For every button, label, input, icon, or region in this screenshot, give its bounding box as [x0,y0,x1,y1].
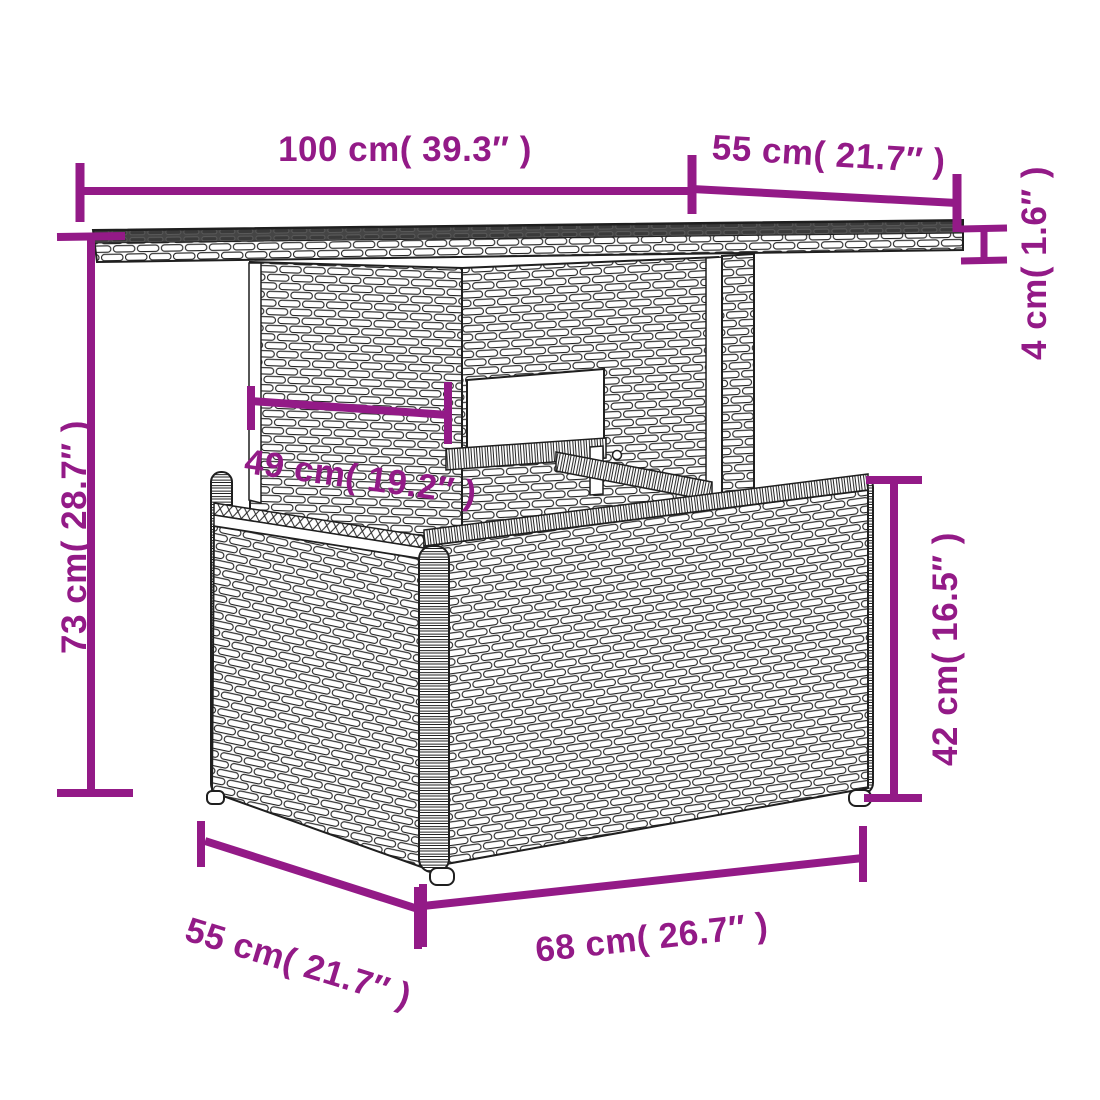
dimension-label-base-height: 42 cm( 16.5″ ) [926,532,965,766]
dimension-label-top-width: 100 cm( 39.3″ ) [278,130,532,169]
dimension-top-width: 100 cm( 39.3″ ) [80,130,692,222]
garden-table-drawing [93,220,963,885]
dimension-line [423,858,863,906]
tick-mark [57,236,125,237]
dimension-overall-height: 73 cm( 28.7″ ) [55,236,133,793]
dimension-line [692,189,957,203]
dimension-label-base-width: 68 cm( 26.7″ ) [533,905,770,969]
pedestal-back-leg [722,254,754,500]
dimension-diagram: 100 cm( 39.3″ ) 55 cm( 21.7″ ) 4 cm( 1.6… [0,0,1100,1100]
dimension-base-height: 42 cm( 16.5″ ) [864,480,965,798]
dimension-top-depth: 55 cm( 21.7″ ) [692,128,957,232]
pedestal-back-plank [706,257,722,502]
tick-mark [961,228,1007,229]
table-foot-left [207,791,224,804]
base-box-left-face [212,526,424,868]
dimension-diagram-canvas: 100 cm( 39.3″ ) 55 cm( 21.7″ ) 4 cm( 1.6… [0,0,1100,1100]
dimension-top-thickness: 4 cm( 1.6″ ) [961,166,1054,360]
dimension-label-base-depth: 55 cm( 21.7″ ) [181,910,416,1016]
rail-screw [613,451,622,460]
table-foot-front [430,868,454,885]
dimension-label-top-depth: 55 cm( 21.7″ ) [711,128,947,181]
base-box-right-face [424,490,868,868]
dimension-label-overall-height: 73 cm( 28.7″ ) [55,420,94,654]
corner-post-front [419,546,449,872]
dimension-label-top-thickness: 4 cm( 1.6″ ) [1015,166,1054,360]
